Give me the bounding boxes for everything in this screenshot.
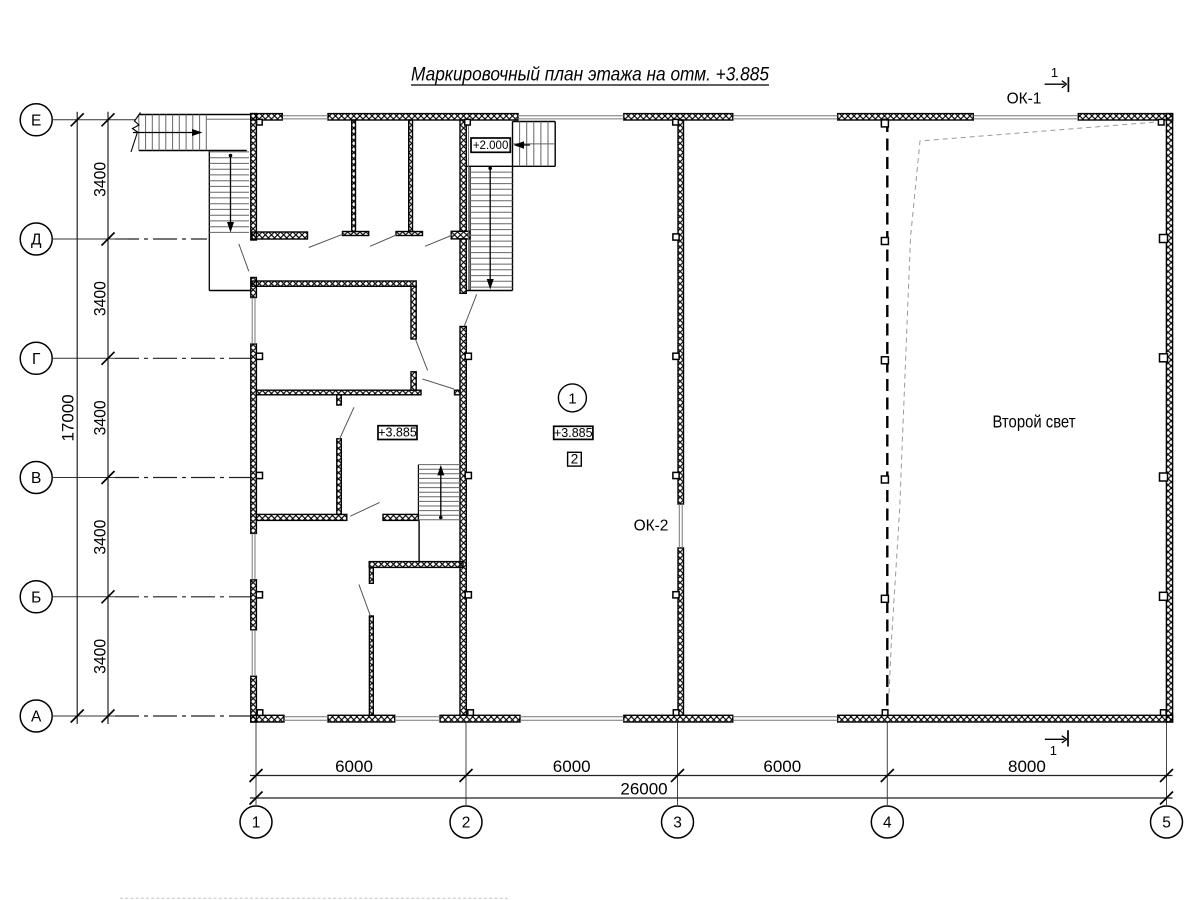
svg-text:В: В	[31, 470, 41, 487]
svg-text:Второй свет: Второй свет	[993, 412, 1076, 432]
svg-text:3400: 3400	[91, 281, 110, 316]
svg-text:Г: Г	[32, 351, 41, 368]
svg-text:Б: Б	[31, 589, 41, 606]
svg-text:6000: 6000	[335, 757, 373, 776]
svg-text:1: 1	[568, 390, 576, 407]
svg-text:1: 1	[1050, 743, 1057, 758]
svg-text:3400: 3400	[91, 400, 110, 435]
svg-text:+3.885: +3.885	[378, 426, 417, 440]
svg-text:6000: 6000	[553, 757, 591, 776]
svg-text:2: 2	[571, 452, 579, 467]
svg-text:+3.885: +3.885	[554, 426, 593, 440]
svg-text:А: А	[31, 709, 42, 726]
svg-text:4: 4	[883, 815, 892, 832]
svg-text:5: 5	[1162, 815, 1171, 832]
svg-text:1: 1	[1051, 65, 1058, 80]
svg-text:17000: 17000	[59, 394, 78, 441]
svg-text:Д: Д	[31, 232, 42, 249]
svg-text:3400: 3400	[91, 162, 110, 197]
svg-text:3: 3	[673, 815, 682, 832]
svg-text:1: 1	[252, 815, 261, 832]
svg-text:6000: 6000	[763, 757, 801, 776]
svg-text:Маркировочный план этажа на от: Маркировочный план этажа на отм. +3.885	[411, 65, 769, 86]
svg-text:Е: Е	[31, 112, 41, 129]
svg-text:ОК-1: ОК-1	[1007, 91, 1042, 108]
svg-text:3400: 3400	[91, 639, 110, 674]
svg-text:3400: 3400	[91, 520, 110, 555]
svg-text:2: 2	[462, 815, 471, 832]
svg-text:ОК-2: ОК-2	[634, 518, 669, 535]
svg-text:+2.000: +2.000	[473, 140, 509, 152]
svg-text:8000: 8000	[1008, 757, 1046, 776]
svg-text:26000: 26000	[620, 780, 667, 799]
